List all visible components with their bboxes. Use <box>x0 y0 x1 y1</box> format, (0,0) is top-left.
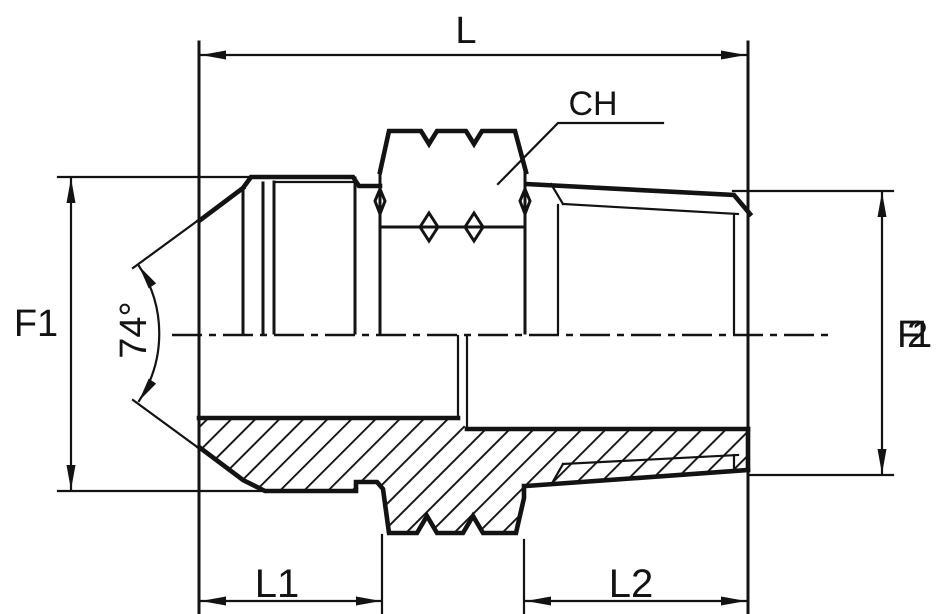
dimension-F2: F 1 2 <box>733 191 932 475</box>
section-hatching <box>150 330 800 590</box>
dim-arrow-F1-bottom <box>67 465 76 490</box>
taper-root-top-line <box>563 204 738 214</box>
label-L1: L1 <box>255 562 300 606</box>
blank-value-box <box>832 313 868 372</box>
dim-arrow-L1-left <box>201 597 226 606</box>
dim-arrow-F1-top <box>67 178 76 203</box>
hex-top-outline <box>380 131 526 172</box>
dim-arrow-L2-right <box>721 597 746 606</box>
fitting-technical-drawing-page: L F1 74° CH F 1 <box>0 0 938 614</box>
dimension-L2: L2 <box>526 562 746 606</box>
dim-arrow-L-right <box>721 51 746 60</box>
extension-lines <box>199 42 748 614</box>
dim-arrow-F2-top <box>878 192 887 217</box>
dim-arrow-F2-bottom <box>878 449 887 474</box>
dim-arrow-L1-right <box>356 597 381 606</box>
label-L: L <box>455 10 476 52</box>
label-F1: F1 <box>14 303 58 345</box>
label-F2-digit-2: 2 <box>907 314 928 356</box>
label-flare-angle: 74° <box>113 301 155 358</box>
label-F2: F 1 2 <box>897 314 932 356</box>
label-L2: L2 <box>609 562 654 606</box>
leader-CH: CH <box>498 85 663 184</box>
part-section-outline <box>150 330 800 590</box>
label-CH: CH <box>568 85 617 123</box>
fitting-technical-drawing: L F1 74° CH F 1 <box>0 0 938 614</box>
dim-arrow-L-left <box>201 51 226 60</box>
dimension-L1: L1 <box>201 562 381 606</box>
angle-arrow-top <box>135 263 156 288</box>
part-top-outline <box>199 131 750 333</box>
angle-arrow-bottom <box>135 379 156 404</box>
dimension-L: L <box>201 10 746 60</box>
dim-arrow-L2-left <box>526 597 551 606</box>
angle-extension-top <box>133 186 245 268</box>
